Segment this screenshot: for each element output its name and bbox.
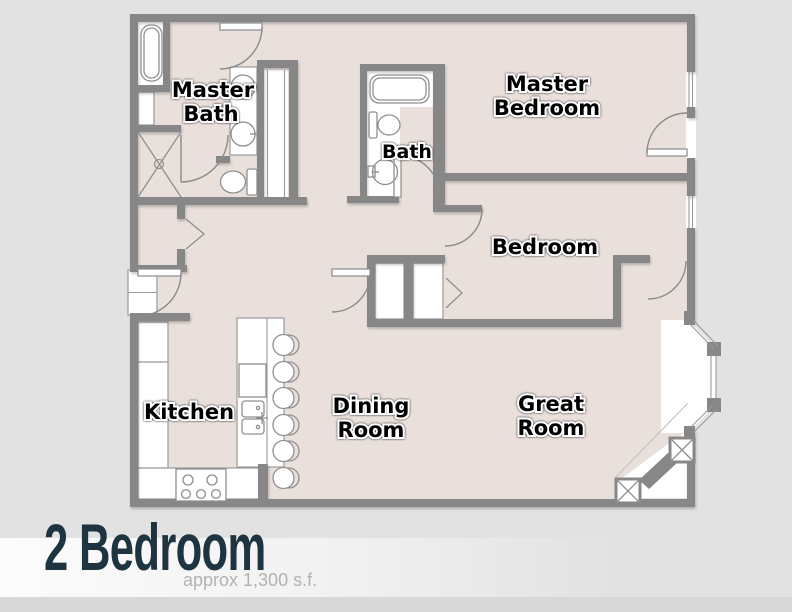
wall-exterior-right	[687, 107, 695, 118]
floor-plan-page: Master Bath Master Bedroom Bath Bedroom …	[0, 0, 792, 612]
dining-door-leaf	[332, 269, 370, 276]
bath-tub-niche	[367, 71, 433, 107]
room-label-master-bath: Bath	[183, 102, 238, 126]
room-label-great-room: Great	[518, 392, 584, 416]
room-label-bedroom: Bedroom	[492, 235, 598, 259]
room-label-dining-room: Room	[338, 418, 405, 442]
refrigerator	[138, 322, 168, 362]
wall-exterior-top	[130, 14, 695, 22]
wall-exterior-left	[130, 313, 138, 507]
window-master-bedroom	[686, 72, 696, 107]
wall-exterior-right	[687, 158, 695, 196]
bay-window-floor	[661, 320, 716, 433]
wall-exterior-right	[687, 14, 695, 72]
toilet-master	[221, 169, 258, 195]
room-label-kitchen: Kitchen	[144, 400, 234, 424]
closet-door-panel	[375, 263, 404, 319]
room-label-bath: Bath	[382, 141, 432, 163]
patio-door-leaf	[647, 149, 687, 156]
closet-door-panel	[413, 263, 443, 319]
room-label-master-bath: Master	[172, 78, 255, 102]
room-label-master-bedroom: Bedroom	[494, 96, 600, 120]
room-label-great-room: Room	[518, 416, 585, 440]
wall-bedroom-divider	[445, 173, 687, 181]
room-label-master-bedroom: Master	[506, 72, 589, 96]
wall-exterior-right	[687, 228, 695, 322]
room-label-dining-room: Dining	[333, 394, 410, 418]
plan-area-text: approx 1,300 s.f.	[183, 570, 317, 591]
window-bedroom	[686, 196, 696, 228]
linen-cabinet	[138, 92, 154, 125]
entry-door-leaf	[138, 269, 181, 276]
wall-exterior-left	[130, 14, 138, 272]
bedroom-door-leaf	[445, 205, 482, 212]
range	[176, 469, 226, 501]
master-bath-door-leaf	[220, 23, 262, 30]
